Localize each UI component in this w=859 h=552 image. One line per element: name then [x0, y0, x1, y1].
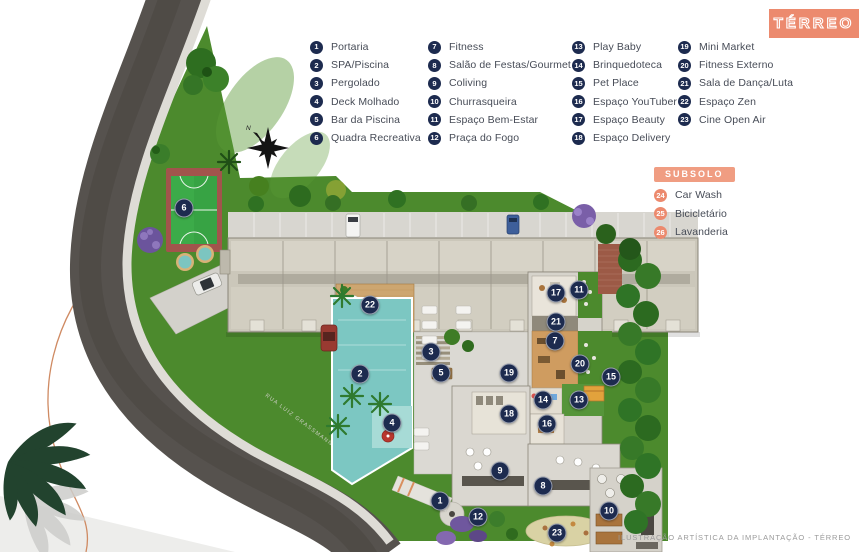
- compass-n-label: N: [246, 125, 251, 132]
- floor-title-text: TÉRREO: [774, 15, 855, 32]
- legend-item-number: 10: [428, 95, 441, 108]
- legend-item-label: Coliving: [449, 77, 487, 89]
- legend-item-number: 12: [428, 132, 441, 145]
- legend-item-number: 4: [310, 95, 323, 108]
- legend-item: 12Praça do Fogo: [428, 129, 571, 147]
- legend-item: 15Pet Place: [572, 74, 677, 92]
- legend-item: 18Espaço Delivery: [572, 129, 677, 147]
- legend-item-label: Portaria: [331, 41, 369, 53]
- legend-item-number: 11: [428, 113, 441, 126]
- legend-item: 10Churrasqueira: [428, 93, 571, 111]
- legend-item: 3Pergolado: [310, 74, 421, 92]
- legend-item-label: Sala de Dança/Luta: [699, 77, 793, 89]
- illustration-caption: ILUSTRAÇÃO ARTÍSTICA DA IMPLANTAÇÃO - TÉ…: [300, 533, 851, 542]
- legend-item: 23Cine Open Air: [678, 111, 793, 129]
- recreational-court: [166, 168, 222, 252]
- legend-item-number: 14: [572, 59, 585, 72]
- legend-item-label: Espaço YouTuber: [593, 96, 677, 108]
- legend-item: 13Play Baby: [572, 38, 677, 56]
- purple-tree: [572, 204, 596, 228]
- legend-item: 17Espaço Beauty: [572, 111, 677, 129]
- legend-item-label: Quadra Recreativa: [331, 132, 421, 144]
- dance-room: [532, 316, 578, 331]
- parking-strip: [228, 212, 698, 238]
- legend-item: 22Espaço Zen: [678, 93, 793, 111]
- legend-item: 20Fitness Externo: [678, 56, 793, 74]
- legend-item: 16Espaço YouTuber: [572, 93, 677, 111]
- legend-column-3: 13Play Baby14Brinquedoteca15Pet Place16E…: [572, 38, 677, 147]
- legend-item-label: SPA/Piscina: [331, 59, 389, 71]
- white-van: [346, 214, 360, 237]
- blue-car: [507, 215, 519, 234]
- legend-item: 25Bicicletário: [654, 205, 735, 224]
- legend-item-number: 19: [678, 41, 691, 54]
- legend-item-number: 16: [572, 95, 585, 108]
- legend-item-label: Praça do Fogo: [449, 132, 519, 144]
- red-car: [321, 325, 337, 351]
- legend-item-number: 5: [310, 113, 323, 126]
- brick-wall: [598, 244, 622, 294]
- legend-item: 14Brinquedoteca: [572, 56, 677, 74]
- legend-item: 19Mini Market: [678, 38, 793, 56]
- legend-item-label: Espaço Zen: [699, 96, 756, 108]
- legend-item-label: Bar da Piscina: [331, 114, 400, 126]
- legend-item: 2SPA/Piscina: [310, 56, 421, 74]
- legend-item-label: Espaço Bem-Estar: [449, 114, 538, 126]
- legend-item: 6Quadra Recreativa: [310, 129, 421, 147]
- legend-item-number: 6: [310, 132, 323, 145]
- legend-item-number: 9: [428, 77, 441, 90]
- legend-item-number: 22: [678, 95, 691, 108]
- legend-item-label: Play Baby: [593, 41, 641, 53]
- coliving-counter: [462, 476, 524, 486]
- legend-item-number: 7: [428, 41, 441, 54]
- implantation-plan-page: RUA LUIZ GRASSMANN: [0, 0, 859, 552]
- legend-item: 5Bar da Piscina: [310, 111, 421, 129]
- legend-item-label: Lavanderia: [675, 226, 728, 238]
- legend-column-4: 19Mini Market20Fitness Externo21Sala de …: [678, 38, 793, 129]
- legend-item-label: Pet Place: [593, 77, 639, 89]
- wet-deck: [372, 406, 412, 448]
- legend-item: 11Espaço Bem-Estar: [428, 111, 571, 129]
- subsolo-section: SUBSOLO 24Car Wash25Bicicletário26Lavand…: [654, 164, 735, 242]
- legend-item-label: Espaço Delivery: [593, 132, 670, 144]
- legend-item: 26Lavanderia: [654, 223, 735, 242]
- legend-item-number: 3: [310, 77, 323, 90]
- subsolo-items: 24Car Wash25Bicicletário26Lavanderia: [654, 186, 735, 242]
- legend-item-number: 20: [678, 59, 691, 72]
- legend-item: 8Salão de Festas/Gourmet: [428, 56, 571, 74]
- legend-item-label: Bicicletário: [675, 208, 727, 220]
- legend-item-label: Brinquedoteca: [593, 59, 662, 71]
- legend-item-label: Espaço Beauty: [593, 114, 665, 126]
- legend-item-number: 18: [572, 132, 585, 145]
- legend-item-number: 21: [678, 77, 691, 90]
- legend-item-number: 17: [572, 113, 585, 126]
- legend-item-number: 25: [654, 207, 667, 220]
- pool-bar: [432, 368, 452, 379]
- legend-item-label: Pergolado: [331, 77, 380, 89]
- playhouse: [584, 386, 604, 401]
- legend-item-number: 15: [572, 77, 585, 90]
- legend-item-label: Cine Open Air: [699, 114, 766, 126]
- legend-item-number: 24: [654, 189, 667, 202]
- subsolo-badge: SUBSOLO: [654, 167, 735, 182]
- legend-item-number: 26: [654, 226, 667, 239]
- legend-item-number: 1: [310, 41, 323, 54]
- pool: [332, 298, 412, 484]
- legend-item: 4Deck Molhado: [310, 93, 421, 111]
- legend-item-label: Fitness: [449, 41, 484, 53]
- legend-item-label: Salão de Festas/Gourmet: [449, 59, 571, 71]
- legend-item-label: Fitness Externo: [699, 59, 773, 71]
- legend-column-2: 7Fitness8Salão de Festas/Gourmet9Colivin…: [428, 38, 571, 147]
- legend-item: 9Coliving: [428, 74, 571, 92]
- legend-item-number: 2: [310, 59, 323, 72]
- legend-item-label: Mini Market: [699, 41, 754, 53]
- legend-item-number: 13: [572, 41, 585, 54]
- legend-item: 7Fitness: [428, 38, 571, 56]
- legend-item-number: 8: [428, 59, 441, 72]
- floor-title-badge: TÉRREO: [769, 9, 859, 38]
- legend-column-1: 1Portaria2SPA/Piscina3Pergolado4Deck Mol…: [310, 38, 421, 147]
- legend-item: 1Portaria: [310, 38, 421, 56]
- legend-item-label: Churrasqueira: [449, 96, 517, 108]
- legend-item: 24Car Wash: [654, 186, 735, 205]
- legend-item-label: Deck Molhado: [331, 96, 399, 108]
- legend-item: 21Sala de Dança/Luta: [678, 74, 793, 92]
- legend-item-label: Car Wash: [675, 189, 722, 201]
- legend-item-number: 23: [678, 113, 691, 126]
